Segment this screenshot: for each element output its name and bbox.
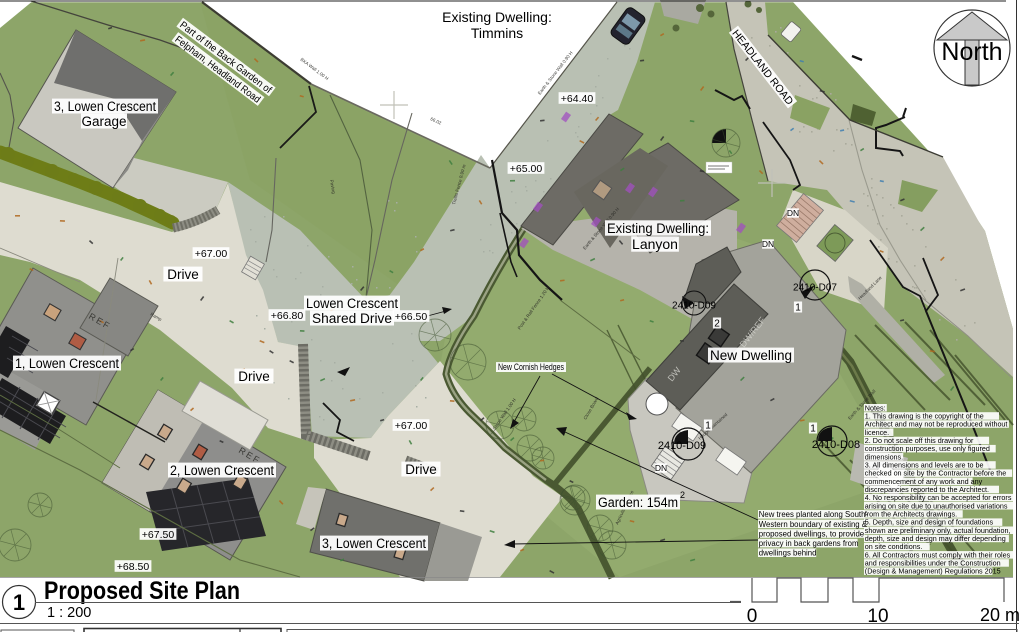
svg-text:Timmins: Timmins	[471, 25, 523, 41]
svg-text:20 m: 20 m	[980, 605, 1020, 625]
svg-text:Drive: Drive	[238, 369, 270, 384]
svg-text:privacy in back gardens from: privacy in back gardens from	[759, 539, 859, 548]
svg-text:Drive: Drive	[167, 267, 199, 282]
svg-text:+66.50: +66.50	[395, 311, 428, 323]
svg-text:(Design & Management) Regulati: (Design & Management) Regulations 2015	[865, 567, 1001, 576]
svg-text:1: 1	[810, 424, 816, 435]
svg-text:New Dwelling: New Dwelling	[710, 348, 792, 363]
svg-text:+67.50: +67.50	[142, 529, 175, 541]
svg-text:2: 2	[714, 319, 720, 330]
svg-text:1, Lowen Crescent: 1, Lowen Crescent	[15, 356, 119, 371]
svg-text:Existing Dwelling:: Existing Dwelling:	[607, 220, 709, 236]
svg-text:Drive: Drive	[405, 462, 437, 477]
svg-text:+65.00: +65.00	[510, 163, 543, 175]
svg-text:2410-D07: 2410-D07	[793, 283, 837, 294]
svg-text:+67.00: +67.00	[395, 420, 428, 432]
svg-text:2410-D09: 2410-D09	[658, 440, 706, 452]
svg-text:2410-D09: 2410-D09	[672, 301, 716, 312]
svg-text:New Cornish Hedges: New Cornish Hedges	[498, 362, 564, 372]
svg-text:2, Lowen Crescent: 2, Lowen Crescent	[170, 463, 274, 478]
svg-text:DN: DN	[762, 239, 774, 249]
svg-text:+67.00: +67.00	[195, 248, 228, 260]
svg-text:Western boundary of existing &: Western boundary of existing &	[759, 520, 868, 529]
svg-text:Garage: Garage	[81, 114, 126, 129]
svg-text:Shared Drive: Shared Drive	[312, 311, 392, 326]
svg-text:+66.80: +66.80	[271, 310, 304, 322]
svg-text:Lowen Crescent: Lowen Crescent	[306, 296, 398, 311]
svg-text:1: 1	[13, 590, 25, 615]
svg-text:DN: DN	[787, 208, 799, 218]
svg-text:1: 1	[795, 303, 801, 314]
svg-text:1 : 200: 1 : 200	[47, 605, 91, 621]
svg-text:3, Lowen Crescent: 3, Lowen Crescent	[54, 99, 156, 114]
svg-text:3, Lowen Crescent: 3, Lowen Crescent	[322, 536, 426, 551]
svg-text:proposed dwellings, to provide: proposed dwellings, to provide	[759, 529, 864, 538]
svg-text:New trees planted along South-: New trees planted along South-	[759, 510, 869, 519]
svg-text:2410-D08: 2410-D08	[812, 439, 860, 451]
svg-text:Existing Dwelling:: Existing Dwelling:	[442, 9, 552, 25]
svg-text:dwellings behind: dwellings behind	[759, 549, 817, 558]
svg-text:Proposed Site Plan: Proposed Site Plan	[44, 577, 240, 605]
svg-text:1: 1	[705, 421, 711, 432]
svg-text:+64.40: +64.40	[561, 93, 594, 105]
svg-text:Garden: 154m: Garden: 154m	[598, 495, 678, 510]
svg-text:+68.50: +68.50	[117, 561, 150, 573]
svg-text:Lanyon: Lanyon	[632, 236, 678, 252]
svg-text:North: North	[941, 38, 1002, 66]
svg-text:2: 2	[680, 490, 685, 500]
svg-text:DN: DN	[655, 463, 667, 473]
